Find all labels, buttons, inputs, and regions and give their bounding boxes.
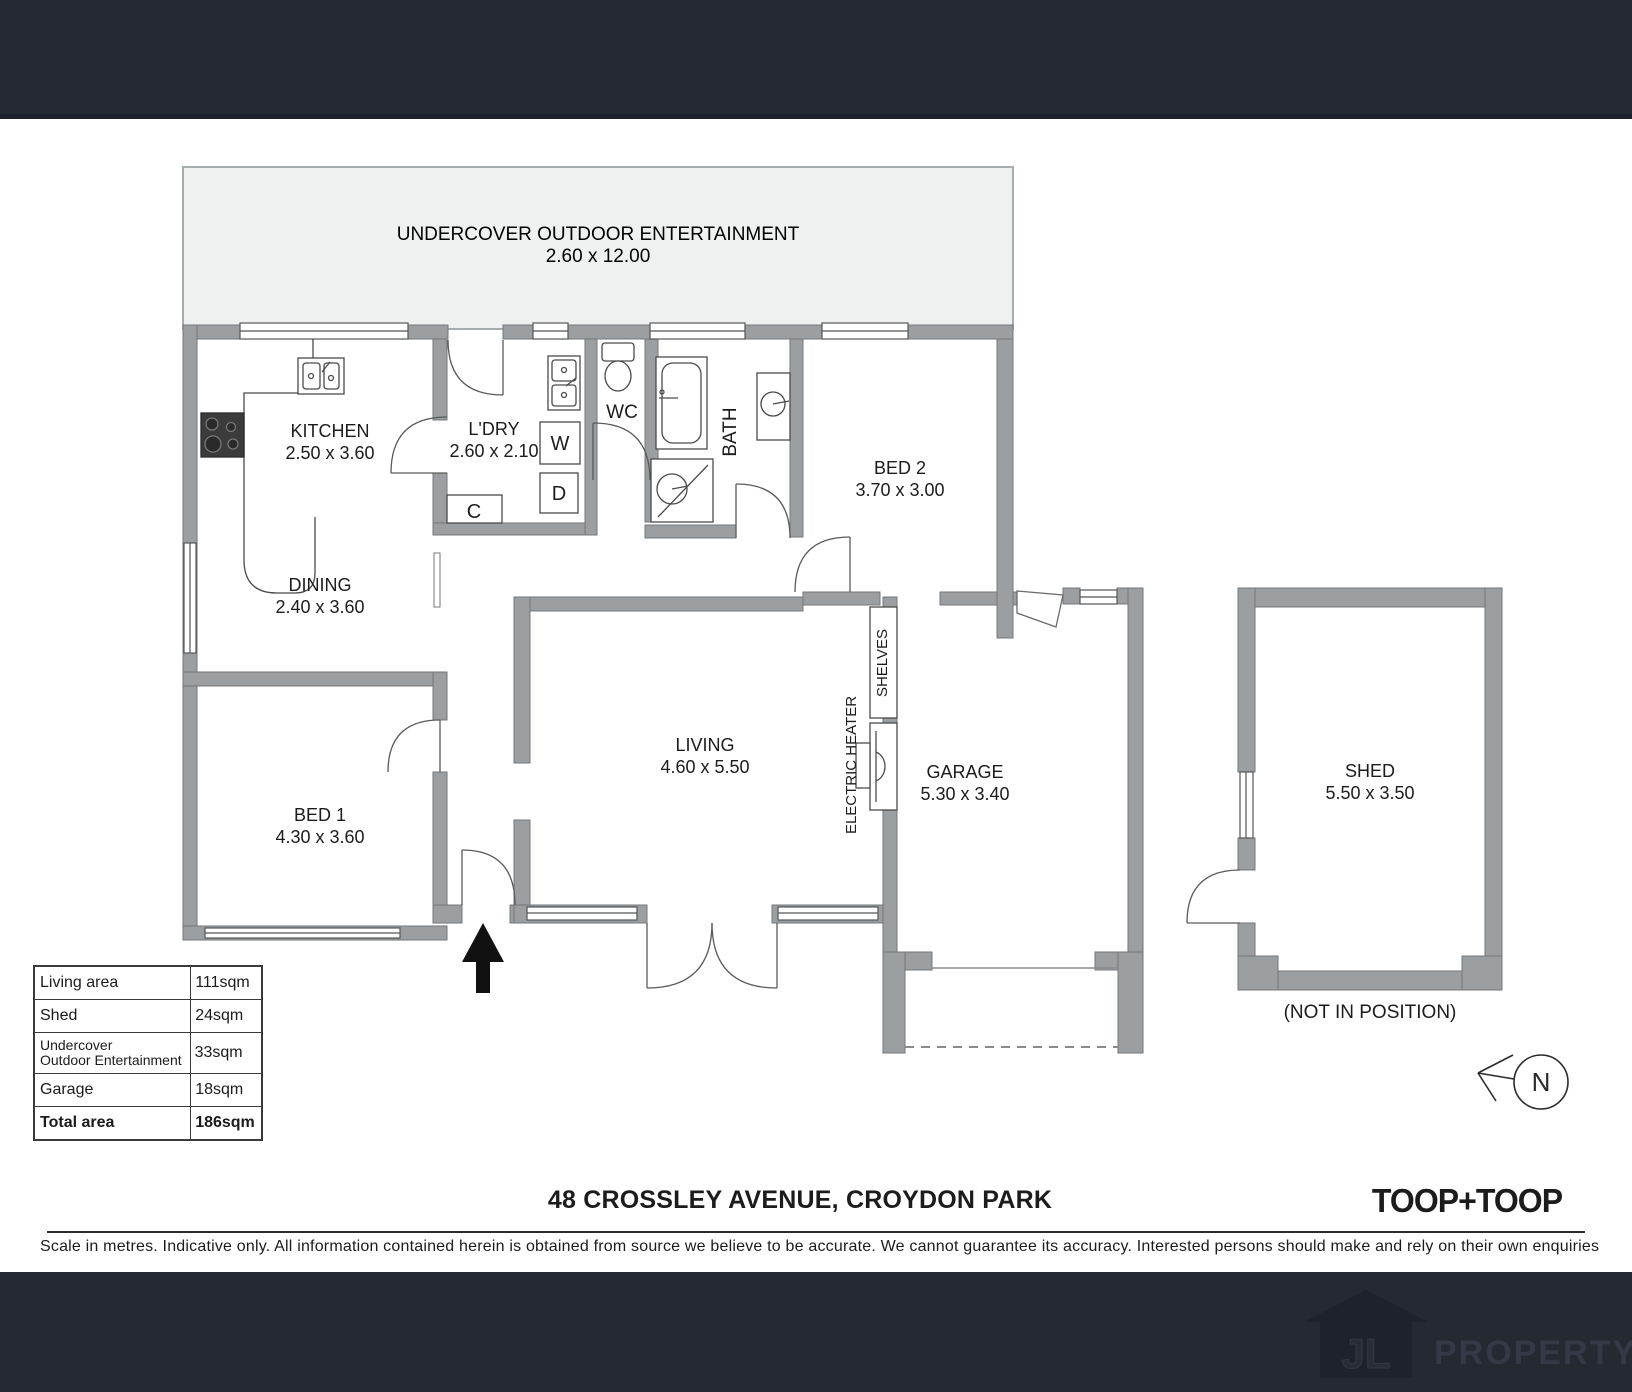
garage-label: GARAGE bbox=[926, 762, 1003, 782]
entry-arrow-icon bbox=[462, 923, 504, 993]
dryer-label: D bbox=[552, 483, 566, 505]
property-label: PROPERTY bbox=[1434, 1334, 1632, 1372]
table-row: Shed 24sqm bbox=[35, 999, 261, 1032]
laundry-tub-icon bbox=[548, 356, 580, 410]
wc-label: WC bbox=[606, 402, 638, 423]
dining-dims: 2.40 x 3.60 bbox=[275, 597, 364, 617]
row-value: 18sqm bbox=[195, 1081, 243, 1099]
bathtub-icon bbox=[656, 357, 707, 449]
bed1-dims: 4.30 x 3.60 bbox=[275, 827, 364, 847]
jl-property-logo: JL PROPERTY bbox=[1296, 1282, 1632, 1386]
cupboard-label: C bbox=[467, 501, 481, 523]
shower-icon bbox=[651, 459, 713, 522]
bed1-label: BED 1 bbox=[294, 805, 346, 825]
kitchen-label: KITCHEN bbox=[290, 421, 369, 441]
bath-label: BATH bbox=[720, 407, 741, 456]
row-value: 33sqm bbox=[195, 1044, 243, 1062]
row-label: Garage bbox=[40, 1081, 186, 1099]
electric-heater-icon bbox=[856, 723, 897, 810]
shelves-label: SHELVES bbox=[874, 629, 891, 697]
disclaimer-text: Scale in metres. Indicative only. All in… bbox=[40, 1238, 1592, 1256]
shed-note: (NOT IN POSITION) bbox=[1284, 1002, 1457, 1023]
laundry-dims: 2.60 x 2.10 bbox=[449, 441, 538, 461]
row-value: 24sqm bbox=[195, 1007, 243, 1025]
dining-label: DINING bbox=[289, 575, 352, 595]
brand-logo: TOOP+TOOP bbox=[1372, 1182, 1562, 1220]
divider-rule bbox=[47, 1231, 1585, 1233]
house-icon: JL bbox=[1304, 1290, 1428, 1378]
toilet-icon bbox=[602, 343, 634, 391]
kitchen-sink-icon bbox=[298, 358, 344, 394]
row-label-line2: Outdoor Entertainment bbox=[40, 1053, 188, 1068]
laundry-label: L'DRY bbox=[468, 419, 519, 439]
cooktop-icon bbox=[201, 413, 244, 457]
living-label: LIVING bbox=[675, 735, 734, 755]
north-compass-icon: N bbox=[1478, 1055, 1568, 1109]
page-title: 48 CROSSLEY AVENUE, CROYDON PARK bbox=[300, 1186, 1300, 1215]
table-row-total: Total area 186sqm bbox=[35, 1106, 261, 1139]
outdoor-label: UNDERCOVER OUTDOOR ENTERTAINMENT bbox=[397, 224, 800, 245]
vanity-icon bbox=[757, 373, 790, 440]
row-label: Living area bbox=[40, 974, 186, 992]
table-row: Living area 111sqm bbox=[35, 967, 261, 999]
outdoor-area: UNDERCOVER OUTDOOR ENTERTAINMENT 2.60 x … bbox=[183, 167, 1013, 329]
outdoor-dims: 2.60 x 12.00 bbox=[546, 246, 651, 267]
row-value: 186sqm bbox=[195, 1114, 255, 1132]
monogram-label: JL bbox=[1341, 1330, 1390, 1377]
row-label: Total area bbox=[40, 1114, 186, 1132]
north-label: N bbox=[1532, 1067, 1551, 1097]
garage-dims: 5.30 x 3.40 bbox=[920, 784, 1009, 804]
row-label: Shed bbox=[40, 1007, 186, 1025]
bed2-dims: 3.70 x 3.00 bbox=[855, 480, 944, 500]
garage-door bbox=[905, 968, 1118, 1047]
table-row: Undercover Outdoor Entertainment 33sqm bbox=[35, 1032, 261, 1073]
living-dims: 4.60 x 5.50 bbox=[660, 757, 749, 777]
table-row: Garage 18sqm bbox=[35, 1073, 261, 1106]
row-label: Undercover bbox=[40, 1038, 188, 1053]
washer-label: W bbox=[551, 433, 570, 455]
shed-label: SHED bbox=[1345, 761, 1395, 781]
shed-dims: 5.50 x 3.50 bbox=[1325, 783, 1414, 803]
electric-heater-label: ELECTRIC HEATER bbox=[843, 696, 860, 834]
kitchen-dims: 2.50 x 3.60 bbox=[285, 443, 374, 463]
area-table: Living area 111sqm Shed 24sqm Undercover… bbox=[33, 965, 263, 1141]
bed2-label: BED 2 bbox=[874, 458, 926, 478]
row-value: 111sqm bbox=[195, 974, 250, 992]
walls bbox=[183, 325, 1502, 1053]
